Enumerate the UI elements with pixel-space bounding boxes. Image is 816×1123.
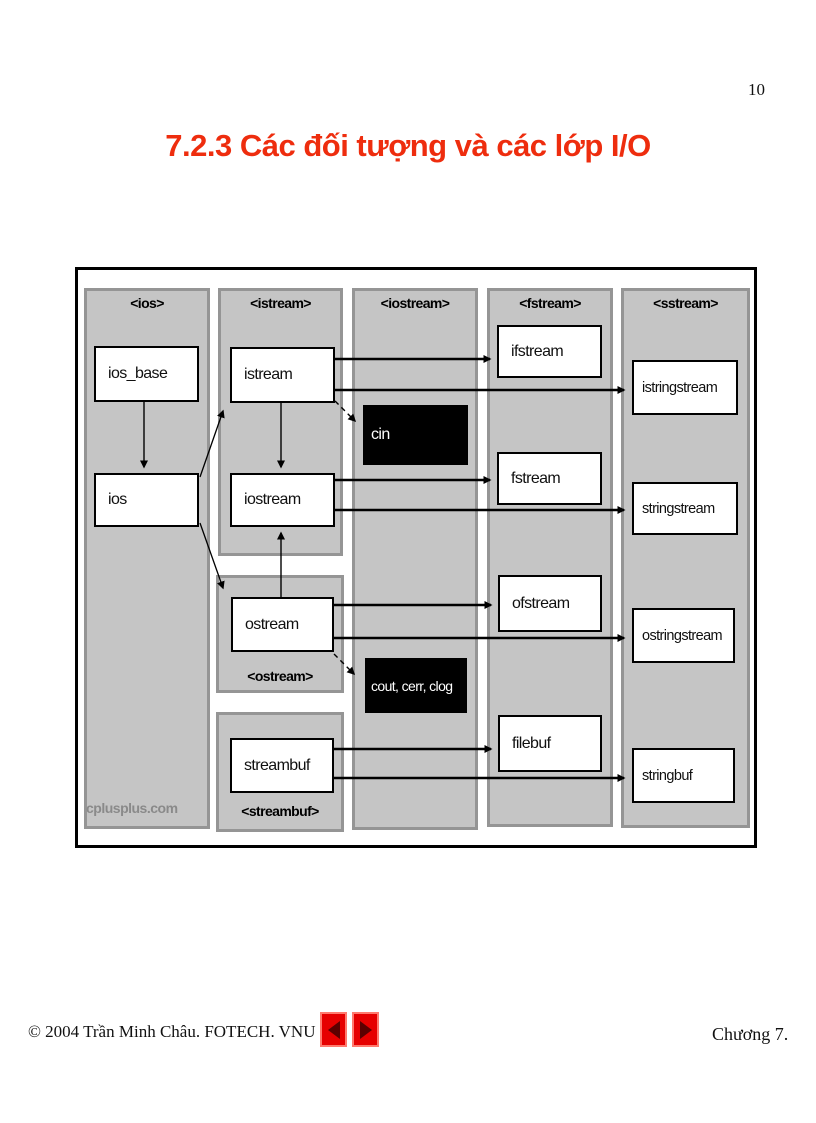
class-hierarchy-diagram: <ios> <istream> <iostream> <fstream> <ss… <box>75 267 757 848</box>
panel-ios-header: <ios> <box>87 295 207 311</box>
class-box-filebuf: filebuf <box>498 715 602 772</box>
panel-streambuf-label: <streambuf> <box>216 803 344 819</box>
class-box-ostream: ostream <box>231 597 334 652</box>
object-box-cout-cerr-clog: cout, cerr, clog <box>365 658 467 713</box>
class-box-ofstream: ofstream <box>498 575 602 632</box>
class-box-iostream: iostream <box>230 473 335 527</box>
class-box-istringstream: istringstream <box>632 360 738 415</box>
class-box-ifstream: ifstream <box>497 325 602 378</box>
panel-iostream: <iostream> <box>352 288 478 830</box>
page-title: 7.2.3 Các đối tượng và các lớp I/O <box>0 128 816 164</box>
panel-sstream-header: <sstream> <box>624 295 747 311</box>
panel-iostream-header: <iostream> <box>355 295 475 311</box>
right-arrow-icon <box>360 1021 372 1039</box>
panel-fstream-header: <fstream> <box>490 295 610 311</box>
page-number: 10 <box>748 80 765 100</box>
class-box-ostringstream: ostringstream <box>632 608 735 663</box>
nav-next-button[interactable] <box>352 1012 379 1047</box>
class-box-stringbuf: stringbuf <box>632 748 735 803</box>
class-box-ios-base: ios_base <box>94 346 199 402</box>
footer-copyright: © 2004 Trần Minh Châu. FOTECH. VNU <box>28 1022 315 1042</box>
nav-previous-button[interactable] <box>320 1012 347 1047</box>
watermark: cplusplus.com <box>86 800 178 816</box>
class-box-istream: istream <box>230 347 335 403</box>
class-box-ios: ios <box>94 473 199 527</box>
panel-istream-header: <istream> <box>221 295 340 311</box>
class-box-fstream: fstream <box>497 452 602 505</box>
slide-page: 10 7.2.3 Các đối tượng và các lớp I/O <i… <box>0 0 816 1123</box>
panel-ostream-label: <ostream> <box>216 668 344 684</box>
object-box-cin: cin <box>363 405 468 465</box>
footer-chapter: Chương 7. <box>712 1024 788 1045</box>
left-arrow-icon <box>328 1021 340 1039</box>
class-box-streambuf: streambuf <box>230 738 334 793</box>
class-box-stringstream: stringstream <box>632 482 738 535</box>
